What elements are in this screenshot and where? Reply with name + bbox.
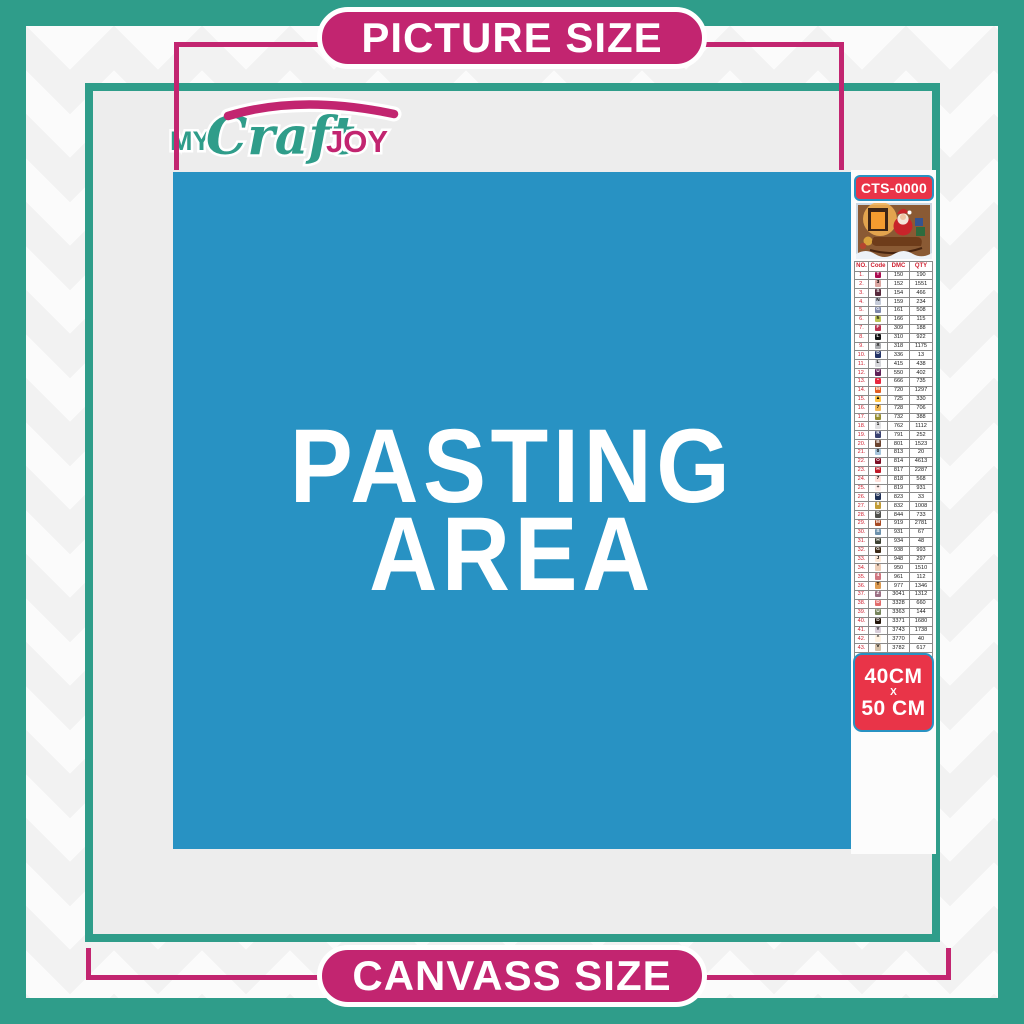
row-symbol-cell: 8 (869, 502, 888, 511)
row-dmc-code: 948 (888, 555, 910, 564)
row-dmc-code: 3371 (888, 617, 910, 626)
row-symbol-cell: B (869, 440, 888, 449)
row-qty: 1297 (910, 386, 933, 395)
table-row: 2. 3 152 1551 (855, 280, 933, 289)
table-row: 40. D 3371 1680 (855, 617, 933, 626)
row-qty: 234 (910, 298, 933, 307)
table-row: 20. B 801 1523 (855, 440, 933, 449)
row-qty: 48 (910, 537, 933, 546)
row-symbol-cell: H (869, 466, 888, 475)
color-symbol-swatch: D (875, 493, 881, 499)
row-dmc-code: 728 (888, 404, 910, 413)
header-dmc: DMC (888, 262, 910, 272)
row-dmc-code: 309 (888, 324, 910, 333)
row-symbol-cell: O (869, 457, 888, 466)
row-number: 26. (855, 493, 869, 502)
row-symbol-cell: G (869, 307, 888, 316)
row-dmc-code: 725 (888, 395, 910, 404)
row-qty: 112 (910, 573, 933, 582)
row-qty: 1312 (910, 591, 933, 600)
row-dmc-code: 919 (888, 520, 910, 529)
christmas-santa-scene-thumbnail (856, 203, 932, 259)
color-symbol-swatch: G (875, 547, 881, 553)
color-symbol-swatch: T (875, 582, 881, 588)
row-dmc-code: 159 (888, 298, 910, 307)
row-symbol-cell: • (869, 378, 888, 387)
row-dmc-code: 150 (888, 271, 910, 280)
row-number: 4. (855, 298, 869, 307)
row-number: 33. (855, 555, 869, 564)
table-row: 24. 7 818 568 (855, 475, 933, 484)
row-symbol-cell: ▲ (869, 395, 888, 404)
row-qty: 2287 (910, 466, 933, 475)
row-number: 30. (855, 528, 869, 537)
row-symbol-cell: L (869, 360, 888, 369)
row-qty: 13 (910, 351, 933, 360)
row-symbol-cell: 1 (869, 422, 888, 431)
table-row: 37. Z 3041 1312 (855, 591, 933, 600)
row-number: 43. (855, 644, 869, 653)
table-row: 4. N 159 234 (855, 298, 933, 307)
picture-bracket-top-left (174, 42, 322, 47)
color-symbol-swatch: B (875, 440, 881, 446)
table-row: 8. L 310 922 (855, 333, 933, 342)
row-dmc-code: 823 (888, 493, 910, 502)
row-number: 3. (855, 289, 869, 298)
row-dmc-code: 152 (888, 280, 910, 289)
row-symbol-cell: D (869, 617, 888, 626)
color-chart-table: NO. Code DMC QTY 1. T 150 190 2. 3 152 1… (854, 261, 933, 698)
row-qty: 190 (910, 271, 933, 280)
product-code-badge: CTS-0000 (854, 175, 934, 201)
table-row: 26. D 823 33 (855, 493, 933, 502)
row-dmc-code: 931 (888, 528, 910, 537)
row-qty: 735 (910, 378, 933, 387)
row-dmc-code: 166 (888, 315, 910, 324)
table-row: 18. 1 762 1112 (855, 422, 933, 431)
color-symbol-swatch: J (875, 556, 881, 562)
table-row: 9. X 318 1175 (855, 342, 933, 351)
row-symbol-cell: 7 (869, 404, 888, 413)
row-number: 9. (855, 342, 869, 351)
row-number: 34. (855, 564, 869, 573)
color-chart-header-row: NO. Code DMC QTY (855, 262, 933, 272)
canvass-size-label: CANVASS SIZE (352, 952, 671, 1000)
row-dmc-code: 961 (888, 573, 910, 582)
row-number: 12. (855, 369, 869, 378)
color-symbol-swatch: D (875, 600, 881, 606)
table-row: 5. G 161 508 (855, 307, 933, 316)
color-symbol-swatch: 7 (875, 476, 881, 482)
table-row: 3. S 154 466 (855, 289, 933, 298)
row-number: 41. (855, 626, 869, 635)
row-symbol-cell: D (869, 351, 888, 360)
row-qty: 1510 (910, 564, 933, 573)
table-row: 22. O 814 4613 (855, 457, 933, 466)
table-row: 15. ▲ 725 330 (855, 395, 933, 404)
row-number: 28. (855, 511, 869, 520)
row-qty: 1175 (910, 342, 933, 351)
row-symbol-cell: M (869, 520, 888, 529)
color-symbol-swatch: T (875, 272, 881, 278)
row-number: 6. (855, 315, 869, 324)
row-qty: 4613 (910, 457, 933, 466)
color-symbol-swatch: 3 (875, 280, 881, 286)
row-symbol-cell: D (869, 599, 888, 608)
canvass-bracket-bottom-left (86, 975, 322, 980)
row-dmc-code: 950 (888, 564, 910, 573)
row-number: 17. (855, 413, 869, 422)
row-number: 23. (855, 466, 869, 475)
table-row: 17. E 732 388 (855, 413, 933, 422)
row-symbol-cell: S (869, 528, 888, 537)
row-qty: 40 (910, 635, 933, 644)
row-qty: 144 (910, 608, 933, 617)
row-number: 20. (855, 440, 869, 449)
table-row: 30. S 931 67 (855, 528, 933, 537)
color-symbol-swatch: * (875, 564, 881, 570)
row-qty: 1523 (910, 440, 933, 449)
color-symbol-swatch: D (875, 511, 881, 517)
row-qty: 931 (910, 484, 933, 493)
table-row: 32. G 938 993 (855, 546, 933, 555)
logo-word-joy: JOY (326, 124, 388, 159)
row-symbol-cell: G (869, 546, 888, 555)
color-symbol-swatch: M (875, 520, 881, 526)
color-symbol-swatch: • (875, 378, 881, 384)
row-dmc-code: 819 (888, 484, 910, 493)
row-qty: 115 (910, 315, 933, 324)
row-symbol-cell: X (869, 342, 888, 351)
table-row: 42. ^ 3770 40 (855, 635, 933, 644)
picture-bracket-left (174, 42, 179, 170)
row-symbol-cell: U (869, 608, 888, 617)
product-infographic: PASTING AREA MY Craft JOY PICTURE SIZE C… (0, 0, 1024, 1024)
color-symbol-swatch: H (875, 467, 881, 473)
table-row: 28. D 844 733 (855, 511, 933, 520)
row-number: 13. (855, 378, 869, 387)
row-number: 29. (855, 520, 869, 529)
row-dmc-code: 318 (888, 342, 910, 351)
picture-size-label: PICTURE SIZE (361, 14, 662, 62)
table-row: 43. V 3782 617 (855, 644, 933, 653)
row-dmc-code: 720 (888, 386, 910, 395)
row-symbol-cell: 0 (869, 449, 888, 458)
row-qty: 466 (910, 289, 933, 298)
color-symbol-swatch: G (875, 307, 881, 313)
row-symbol-cell: N (869, 298, 888, 307)
size-x-label: X (890, 688, 897, 698)
row-dmc-code: 817 (888, 466, 910, 475)
color-symbol-swatch: M (875, 387, 881, 393)
row-number: 38. (855, 599, 869, 608)
table-row: 31. H 934 48 (855, 537, 933, 546)
picture-bracket-right (839, 42, 844, 170)
table-row: 13. • 666 735 (855, 378, 933, 387)
header-no: NO. (855, 262, 869, 272)
row-symbol-cell: T (869, 582, 888, 591)
color-symbol-swatch: 4 (875, 573, 881, 579)
row-dmc-code: 938 (888, 546, 910, 555)
product-code-label: CTS-0000 (861, 180, 927, 196)
row-symbol-cell: E (869, 413, 888, 422)
row-dmc-code: 732 (888, 413, 910, 422)
row-number: 7. (855, 324, 869, 333)
pasting-area: PASTING AREA (173, 172, 851, 849)
row-number: 36. (855, 582, 869, 591)
row-dmc-code: 844 (888, 511, 910, 520)
row-number: 39. (855, 608, 869, 617)
row-qty: 67 (910, 528, 933, 537)
row-qty: 993 (910, 546, 933, 555)
canvass-size-banner: CANVASS SIZE (317, 945, 707, 1007)
row-dmc-code: 3328 (888, 599, 910, 608)
row-qty: 1112 (910, 422, 933, 431)
row-symbol-cell: M (869, 386, 888, 395)
color-symbol-swatch: 7 (875, 405, 881, 411)
row-dmc-code: 977 (888, 582, 910, 591)
row-number: 40. (855, 617, 869, 626)
header-code: Code (869, 262, 888, 272)
row-symbol-cell: D (869, 493, 888, 502)
color-symbol-swatch: D (875, 351, 881, 357)
color-symbol-swatch: N (875, 298, 881, 304)
row-symbol-cell: + (869, 484, 888, 493)
row-dmc-code: 415 (888, 360, 910, 369)
row-dmc-code: 666 (888, 378, 910, 387)
row-symbol-cell: * (869, 564, 888, 573)
row-symbol-cell: Y (869, 626, 888, 635)
color-symbol-swatch: ▲ (875, 396, 881, 402)
color-symbol-swatch: ^ (875, 635, 881, 641)
size-height-label: 50 CM (861, 698, 925, 720)
row-qty: 1680 (910, 617, 933, 626)
row-number: 21. (855, 449, 869, 458)
row-number: 1. (855, 271, 869, 280)
color-symbol-swatch: 1 (875, 422, 881, 428)
canvass-bracket-bottom-right (702, 975, 951, 980)
row-qty: 706 (910, 404, 933, 413)
row-qty: 297 (910, 555, 933, 564)
row-qty: 402 (910, 369, 933, 378)
row-number: 10. (855, 351, 869, 360)
table-row: 7. F 309 188 (855, 324, 933, 333)
row-dmc-code: 832 (888, 502, 910, 511)
table-row: 19. R 791 252 (855, 431, 933, 440)
color-symbol-swatch: U (875, 609, 881, 615)
row-symbol-cell: L (869, 333, 888, 342)
table-row: 34. * 950 1510 (855, 564, 933, 573)
row-number: 15. (855, 395, 869, 404)
row-dmc-code: 3782 (888, 644, 910, 653)
row-symbol-cell: 3 (869, 280, 888, 289)
row-dmc-code: 934 (888, 537, 910, 546)
size-width-label: 40CM (864, 666, 922, 688)
row-qty: 33 (910, 493, 933, 502)
row-qty: 922 (910, 333, 933, 342)
row-dmc-code: 813 (888, 449, 910, 458)
color-chart-table-body: 1. T 150 190 2. 3 152 1551 3. S 154 466 … (855, 271, 933, 697)
table-row: 16. 7 728 706 (855, 404, 933, 413)
row-number: 37. (855, 591, 869, 600)
table-row: 35. 4 961 112 (855, 573, 933, 582)
row-qty: 438 (910, 360, 933, 369)
row-dmc-code: 818 (888, 475, 910, 484)
color-symbol-swatch: + (875, 485, 881, 491)
row-qty: 2781 (910, 520, 933, 529)
row-number: 8. (855, 333, 869, 342)
color-symbol-swatch: V (875, 644, 881, 650)
row-qty: 188 (910, 324, 933, 333)
table-row: 21. 0 813 20 (855, 449, 933, 458)
table-row: 41. Y 3743 1738 (855, 626, 933, 635)
row-number: 25. (855, 484, 869, 493)
row-number: 2. (855, 280, 869, 289)
row-number: 5. (855, 307, 869, 316)
row-number: 27. (855, 502, 869, 511)
row-symbol-cell: 4 (869, 573, 888, 582)
row-qty: 617 (910, 644, 933, 653)
color-symbol-swatch: S (875, 529, 881, 535)
table-row: 33. J 948 297 (855, 555, 933, 564)
color-symbol-swatch: 0 (875, 449, 881, 455)
row-dmc-code: 310 (888, 333, 910, 342)
color-symbol-swatch: F (875, 325, 881, 331)
row-symbol-cell: Z (869, 591, 888, 600)
row-dmc-code: 762 (888, 422, 910, 431)
table-row: 6. h 166 115 (855, 315, 933, 324)
row-qty: 508 (910, 307, 933, 316)
row-symbol-cell: H (869, 537, 888, 546)
row-number: 42. (855, 635, 869, 644)
row-dmc-code: 3743 (888, 626, 910, 635)
row-symbol-cell: R (869, 431, 888, 440)
color-symbol-swatch: E (875, 414, 881, 420)
color-symbol-swatch: S (875, 289, 881, 295)
row-qty: 1551 (910, 280, 933, 289)
row-dmc-code: 801 (888, 440, 910, 449)
color-symbol-swatch: R (875, 431, 881, 437)
row-qty: 388 (910, 413, 933, 422)
table-row: 38. D 3328 660 (855, 599, 933, 608)
color-symbol-swatch: 8 (875, 502, 881, 508)
row-qty: 20 (910, 449, 933, 458)
row-symbol-cell: D (869, 511, 888, 520)
table-row: 29. M 919 2781 (855, 520, 933, 529)
row-symbol-cell: F (869, 324, 888, 333)
row-symbol-cell: T (869, 271, 888, 280)
row-qty: 330 (910, 395, 933, 404)
row-dmc-code: 3363 (888, 608, 910, 617)
row-number: 32. (855, 546, 869, 555)
row-symbol-cell: 7 (869, 475, 888, 484)
color-symbol-swatch: D (875, 618, 881, 624)
row-number: 35. (855, 573, 869, 582)
row-number: 22. (855, 457, 869, 466)
row-dmc-code: 161 (888, 307, 910, 316)
row-qty: 1738 (910, 626, 933, 635)
table-row: 36. T 977 1346 (855, 582, 933, 591)
table-row: 14. M 720 1297 (855, 386, 933, 395)
row-number: 14. (855, 386, 869, 395)
color-symbol-swatch: h (875, 316, 881, 322)
color-symbol-swatch: L (875, 360, 881, 366)
row-dmc-code: 791 (888, 431, 910, 440)
row-qty: 733 (910, 511, 933, 520)
row-number: 31. (855, 537, 869, 546)
row-dmc-code: 336 (888, 351, 910, 360)
picture-bracket-top-right (702, 42, 844, 47)
color-symbol-swatch: Z (875, 591, 881, 597)
table-row: 1. T 150 190 (855, 271, 933, 280)
row-qty: 252 (910, 431, 933, 440)
header-qty: QTY (910, 262, 933, 272)
mycraftjoy-logo: MY Craft JOY (168, 92, 406, 170)
color-symbol-swatch: X (875, 343, 881, 349)
color-symbol-swatch: O (875, 458, 881, 464)
table-row: 27. 8 832 1008 (855, 502, 933, 511)
row-qty: 1008 (910, 502, 933, 511)
color-symbol-swatch: H (875, 538, 881, 544)
row-dmc-code: 814 (888, 457, 910, 466)
row-symbol-cell: U (869, 369, 888, 378)
table-row: 23. H 817 2287 (855, 466, 933, 475)
row-number: 18. (855, 422, 869, 431)
table-row: 12. U 550 402 (855, 369, 933, 378)
row-symbol-cell: S (869, 289, 888, 298)
row-number: 24. (855, 475, 869, 484)
row-dmc-code: 154 (888, 289, 910, 298)
row-dmc-code: 3041 (888, 591, 910, 600)
color-symbol-swatch: Y (875, 627, 881, 633)
table-row: 11. L 415 438 (855, 360, 933, 369)
row-symbol-cell: J (869, 555, 888, 564)
canvas-size-badge: 40CM X 50 CM (853, 653, 934, 732)
row-symbol-cell: ^ (869, 635, 888, 644)
color-symbol-swatch: U (875, 369, 881, 375)
color-symbol-swatch: L (875, 334, 881, 340)
row-qty: 1346 (910, 582, 933, 591)
row-number: 16. (855, 404, 869, 413)
table-row: 25. + 819 931 (855, 484, 933, 493)
row-dmc-code: 3770 (888, 635, 910, 644)
picture-size-banner: PICTURE SIZE (317, 7, 707, 69)
row-number: 11. (855, 360, 869, 369)
table-row: 39. U 3363 144 (855, 608, 933, 617)
row-qty: 568 (910, 475, 933, 484)
row-symbol-cell: h (869, 315, 888, 324)
row-symbol-cell: V (869, 644, 888, 653)
row-dmc-code: 550 (888, 369, 910, 378)
row-qty: 660 (910, 599, 933, 608)
table-row: 10. D 336 13 (855, 351, 933, 360)
pasting-area-text: PASTING AREA (290, 423, 735, 599)
row-number: 19. (855, 431, 869, 440)
